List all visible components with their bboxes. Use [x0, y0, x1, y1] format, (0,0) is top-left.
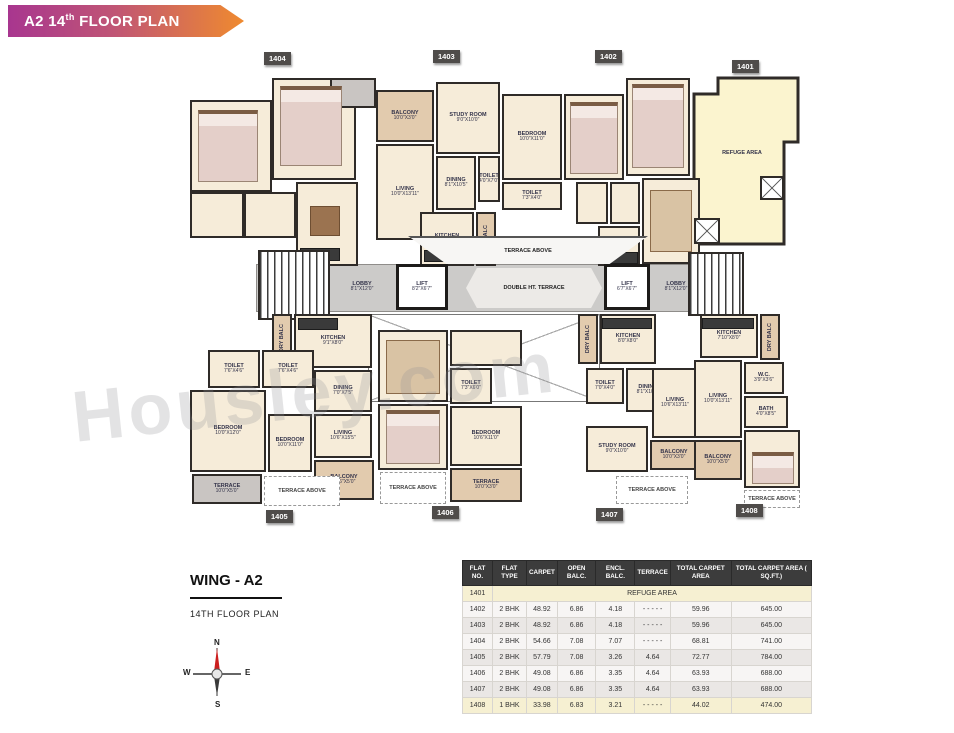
table-cell: 2 BHK: [492, 665, 526, 681]
table-cell: 72.77: [670, 649, 731, 665]
table-cell: 54.66: [526, 633, 557, 649]
table-cell: 645.00: [731, 601, 811, 617]
table-row-refuge: 1401REFUGE AREA: [463, 585, 812, 601]
table-cell: 741.00: [731, 633, 811, 649]
table-header-cell: OPEN BALC.: [557, 561, 595, 586]
room-dimensions: 7'3"X4'0": [522, 196, 542, 202]
table-cell: 1401: [463, 585, 493, 601]
u1402-toilet-1: [576, 182, 608, 224]
table-cell: 688.00: [731, 665, 811, 681]
table-cell: 3.26: [596, 649, 635, 665]
wing-subtitle: 14TH FLOOR PLAN: [190, 609, 282, 619]
room-label: REFUGE AREA: [722, 150, 762, 156]
kitchen-counter: [602, 318, 652, 329]
table-header-cell: ENCL. BALC.: [596, 561, 635, 586]
table-cell: - - - - -: [635, 697, 670, 713]
table-cell: 2 BHK: [492, 617, 526, 633]
u1403-study: STUDY ROOM9'0"X10'0": [436, 82, 500, 154]
shaft: [694, 218, 720, 244]
u1406-bedroom-2: BEDROOM10'6"X11'0": [450, 406, 522, 466]
bed: [570, 102, 618, 174]
table-cell-refuge: REFUGE AREA: [492, 585, 811, 601]
room-dimensions: 7'0"X7'5": [333, 391, 353, 397]
table-cell: 784.00: [731, 649, 811, 665]
flat-area-table: FLAT NO.FLAT TYPECARPETOPEN BALC.ENCL. B…: [462, 560, 812, 714]
table-cell: 68.81: [670, 633, 731, 649]
bed: [386, 410, 440, 464]
table-header-cell: FLAT TYPE: [492, 561, 526, 586]
u1407-terrace-above: TERRACE ABOVE: [616, 476, 688, 504]
table-cell: 1 BHK: [492, 697, 526, 713]
room-dimensions: 10'0"X11'0": [519, 137, 544, 143]
room-dimensions: 10'6"X11'0": [473, 436, 498, 442]
table-cell: 2 BHK: [492, 633, 526, 649]
compass-south-label: S: [215, 700, 220, 709]
unit-badge-1401: 1401: [732, 60, 759, 73]
dining-table: [310, 206, 340, 236]
table-header: FLAT NO.FLAT TYPECARPETOPEN BALC.ENCL. B…: [463, 561, 812, 586]
room-dimensions: 7'6"X4'6": [278, 369, 298, 375]
unit-badge-1405: 1405: [266, 510, 293, 523]
bed: [198, 110, 258, 182]
kitchen-counter: [298, 318, 338, 330]
u1408-bath: BATH4'0"X8'5": [744, 396, 788, 428]
room-label: TERRACE ABOVE: [748, 496, 795, 502]
table-cell: 1402: [463, 601, 493, 617]
unit-badge-1406: 1406: [432, 506, 459, 519]
table-row: 14081 BHK33.986.833.21- - - - -44.02474.…: [463, 697, 812, 713]
table-cell: 6.86: [557, 665, 595, 681]
u1403-toilet-2: TOILET7'3"X4'0": [502, 182, 562, 210]
room-dimensions: 8'1"X12'0": [351, 287, 374, 293]
u1406-hall: [450, 330, 522, 366]
table-header-cell: TOTAL CARPET AREA: [670, 561, 731, 586]
table-cell: 49.08: [526, 665, 557, 681]
unit-badge-1407: 1407: [596, 508, 623, 521]
table-header-cell: TERRACE: [635, 561, 670, 586]
table-cell: 1405: [463, 649, 493, 665]
room-dimensions: 8'2"X6'7": [412, 287, 432, 293]
table-cell: 688.00: [731, 681, 811, 697]
table-cell: 3.35: [596, 681, 635, 697]
room-dimensions: 10'0"X12'0": [215, 431, 240, 437]
table-row: 14062 BHK49.086.863.354.6463.93688.00: [463, 665, 812, 681]
shaft: [760, 176, 784, 200]
table-cell: 2 BHK: [492, 601, 526, 617]
table-cell: 49.08: [526, 681, 557, 697]
sofa: [650, 190, 692, 252]
u1405-toilet-1: TOILET7'6"X4'6": [208, 350, 260, 388]
room-dimensions: 3'9"X3'6": [754, 378, 774, 384]
room-dimensions: 10'0"X3'0": [394, 116, 417, 122]
table-cell: 33.98: [526, 697, 557, 713]
u1403-bedroom: BEDROOM10'0"X11'0": [502, 94, 562, 180]
double-ht-terrace: DOUBLE HT. TERRACE: [466, 268, 602, 308]
table-cell: 6.86: [557, 681, 595, 697]
u1404-toilet-1: [190, 192, 244, 238]
table-cell: 48.92: [526, 601, 557, 617]
table-cell: 1408: [463, 697, 493, 713]
staircase-left: [258, 250, 330, 320]
table-cell: - - - - -: [635, 601, 670, 617]
u1403-dining: DINING8'1"X10'5": [436, 156, 476, 210]
room-label: TERRACE ABOVE: [628, 487, 675, 493]
table-cell: 4.18: [596, 617, 635, 633]
table-cell: 6.86: [557, 601, 595, 617]
staircase-right: [688, 252, 744, 316]
room-dimensions: 10'0"X3'0": [475, 485, 498, 491]
table-row: 14052 BHK57.797.083.264.6472.77784.00: [463, 649, 812, 665]
u1405-bedroom-2: BEDROOM10'0"X11'0": [268, 414, 312, 472]
compass-north-label: N: [214, 638, 220, 647]
table-cell: 6.83: [557, 697, 595, 713]
table-cell: - - - - -: [635, 633, 670, 649]
unit-badge-1402: 1402: [595, 50, 622, 63]
u1408-balcony: BALCONY10'0"X5'0": [694, 440, 742, 480]
room-label: DRY BALC: [279, 324, 285, 352]
table-cell: 474.00: [731, 697, 811, 713]
table-cell: 7.08: [557, 633, 595, 649]
u1403-toilet-1: TOILET4'0"X7'0": [478, 156, 500, 202]
refuge-area-label: REFUGE AREA: [700, 146, 784, 160]
u1405-terrace: TERRACE10'0"X5'0": [192, 474, 262, 504]
table-cell: 44.02: [670, 697, 731, 713]
room-label: TERRACE ABOVE: [389, 485, 436, 491]
unit-badge-1403: 1403: [433, 50, 460, 63]
room-dimensions: 10'0"X13'11": [704, 399, 732, 405]
room-dimensions: 10'0"X13'11": [391, 192, 419, 198]
u1408-living: LIVING10'0"X13'11": [694, 360, 742, 438]
room-label: DRY BALC: [767, 323, 773, 351]
room-dimensions: 8'1"X12'0": [665, 287, 688, 293]
lift-left: LIFT8'2"X6'7": [396, 264, 448, 310]
table-cell: 3.35: [596, 665, 635, 681]
room-dimensions: 10'0"X5'0": [707, 460, 730, 466]
u1406-toilet: TOILET7'3"X6'0": [450, 368, 492, 404]
table-cell: 1406: [463, 665, 493, 681]
room-dimensions: 7'0"X4'0": [595, 386, 615, 392]
room-dimensions: 7'10"X8'0": [718, 336, 741, 342]
room-dimensions: 9'0"X10'0": [457, 118, 480, 124]
room-dimensions: 10'6"X13'11": [661, 403, 689, 409]
table-cell: 48.92: [526, 617, 557, 633]
room-dimensions: 6'7"X6'7": [617, 287, 637, 293]
bed: [280, 86, 342, 166]
table-cell: 2 BHK: [492, 649, 526, 665]
table-cell: 1404: [463, 633, 493, 649]
table-row: 14072 BHK49.086.863.354.6463.93688.00: [463, 681, 812, 697]
room-dimensions: 7'6"X4'6": [224, 369, 244, 375]
u1407-dry-balcony: DRY BALC: [578, 314, 598, 364]
room-dimensions: 9'0"X10'0": [606, 449, 629, 455]
compass-rose: N E S W: [183, 638, 251, 710]
table-cell: 2 BHK: [492, 681, 526, 697]
room-dimensions: 4'0"X8'5": [756, 412, 776, 418]
u1405-dining: DINING7'0"X7'5": [314, 370, 372, 412]
table-cell: 1407: [463, 681, 493, 697]
unit-badge-1404: 1404: [264, 52, 291, 65]
table-cell: 1403: [463, 617, 493, 633]
u1408-wc: W.C.3'9"X3'6": [744, 362, 784, 394]
room-label: DOUBLE HT. TERRACE: [503, 285, 564, 291]
table-cell: 59.96: [670, 601, 731, 617]
lobby-left: LOBBY8'1"X12'0": [332, 270, 392, 304]
unit-badge-1408: 1408: [736, 504, 763, 517]
table-row: 14042 BHK54.667.087.07- - - - -68.81741.…: [463, 633, 812, 649]
table-cell: 57.79: [526, 649, 557, 665]
room-dimensions: 8'0"X8'0": [618, 339, 638, 345]
room-dimensions: 9'1"X8'0": [323, 341, 343, 347]
wing-title-block: WING - A2 14TH FLOOR PLAN: [190, 572, 282, 619]
u1405-terrace-above: TERRACE ABOVE: [264, 476, 340, 506]
room-label: TERRACE ABOVE: [278, 488, 325, 494]
wing-title: WING - A2: [190, 572, 282, 599]
u1407-balcony: BALCONY10'0"X3'0": [650, 440, 698, 470]
room-dimensions: 10'0"X3'0": [663, 455, 686, 461]
u1407-study: STUDY ROOM9'0"X10'0": [586, 426, 648, 472]
room-dimensions: 7'3"X6'0": [461, 386, 481, 392]
table-cell: 63.93: [670, 681, 731, 697]
table-header-cell: TOTAL CARPET AREA ( SQ.FT.): [731, 561, 811, 586]
compass-west-label: W: [183, 668, 191, 677]
compass-east-label: E: [245, 668, 250, 677]
table-cell: 7.07: [596, 633, 635, 649]
u1406-terrace-above: TERRACE ABOVE: [380, 472, 446, 504]
table-cell: 4.18: [596, 601, 635, 617]
lift-right: LIFT6'7"X6'7": [604, 264, 650, 310]
room-dimensions: 10'6"X15'5": [330, 436, 355, 442]
room-label: DRY BALC: [585, 325, 591, 353]
room-label: TERRACE ABOVE: [504, 248, 551, 254]
table-cell: 645.00: [731, 617, 811, 633]
table-cell: - - - - -: [635, 617, 670, 633]
kitchen-counter: [702, 318, 754, 329]
table-cell: 3.21: [596, 697, 635, 713]
u1407-toilet: TOILET7'0"X4'0": [586, 368, 624, 404]
sofa: [386, 340, 440, 394]
table-header-cell: FLAT NO.: [463, 561, 493, 586]
u1404-toilet-2: [244, 192, 296, 238]
u1405-toilet-2: TOILET7'6"X4'6": [262, 350, 314, 388]
table-row: 14022 BHK48.926.864.18- - - - -59.96645.…: [463, 601, 812, 617]
table-cell: 7.08: [557, 649, 595, 665]
u1406-terrace: TERRACE10'0"X3'0": [450, 468, 522, 502]
u1405-living: LIVING10'6"X15'5": [314, 414, 372, 458]
room-dimensions: 10'0"X11'0": [277, 443, 302, 449]
table-cell: 4.64: [635, 681, 670, 697]
u1408-dry-balcony: DRY BALC: [760, 314, 780, 360]
table-header-cell: CARPET: [526, 561, 557, 586]
bed: [752, 452, 794, 484]
table-cell: 4.64: [635, 649, 670, 665]
terrace-above-center: TERRACE ABOVE: [408, 236, 648, 264]
table-cell: 59.96: [670, 617, 731, 633]
u1405-bedroom-1: BEDROOM10'0"X12'0": [190, 390, 266, 472]
table-cell: 63.93: [670, 665, 731, 681]
bed: [632, 84, 684, 168]
room-dimensions: 4'0"X7'0": [479, 179, 499, 185]
u1403-balcony: BALCONY10'0"X3'0": [376, 90, 434, 142]
room-dimensions: 10'0"X5'0": [216, 489, 239, 495]
u1407-living: LIVING10'6"X13'11": [652, 368, 698, 438]
table-cell: 6.86: [557, 617, 595, 633]
room-dimensions: 8'1"X10'5": [445, 183, 468, 189]
u1402-toilet-2: [610, 182, 640, 224]
table-row: 14032 BHK48.926.864.18- - - - -59.96645.…: [463, 617, 812, 633]
table-cell: 4.64: [635, 665, 670, 681]
